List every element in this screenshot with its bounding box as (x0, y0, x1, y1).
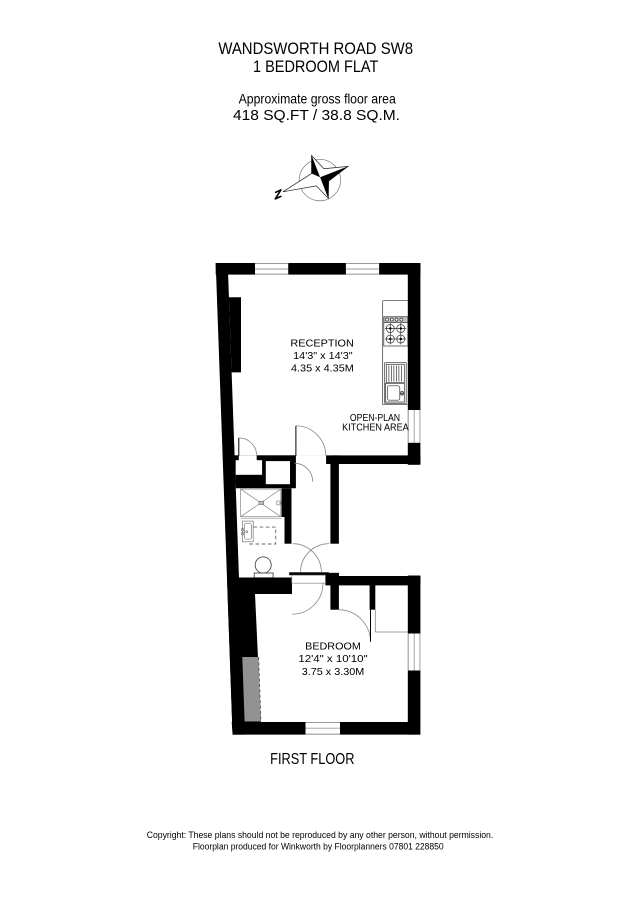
svg-text:1 BEDROOM FLAT: 1 BEDROOM FLAT (253, 58, 378, 76)
svg-text:Floorplan produced for Winkwor: Floorplan produced for Winkworth by Floo… (193, 842, 444, 852)
svg-text:RECEPTION: RECEPTION (290, 339, 354, 350)
svg-text:4.35 x 4.35M: 4.35 x 4.35M (291, 363, 354, 374)
svg-text:KITCHEN AREA: KITCHEN AREA (342, 422, 409, 433)
svg-text:FIRST FLOOR: FIRST FLOOR (270, 751, 354, 768)
svg-text:12'4" x 10'10": 12'4" x 10'10" (298, 654, 368, 665)
svg-text:3.75 x 3.30M: 3.75 x 3.30M (302, 667, 365, 678)
svg-text:BEDROOM: BEDROOM (305, 641, 361, 652)
svg-text:14'3" x 14'3": 14'3" x 14'3" (293, 351, 353, 362)
svg-text:Approximate gross floor area: Approximate gross floor area (239, 92, 397, 107)
svg-text:418 SQ.FT / 38.8 SQ.M.: 418 SQ.FT / 38.8 SQ.M. (233, 108, 400, 124)
svg-text:WANDSWORTH ROAD SW8: WANDSWORTH ROAD SW8 (218, 40, 413, 58)
svg-text:Copyright: These plans should: Copyright: These plans should not be rep… (147, 830, 494, 840)
